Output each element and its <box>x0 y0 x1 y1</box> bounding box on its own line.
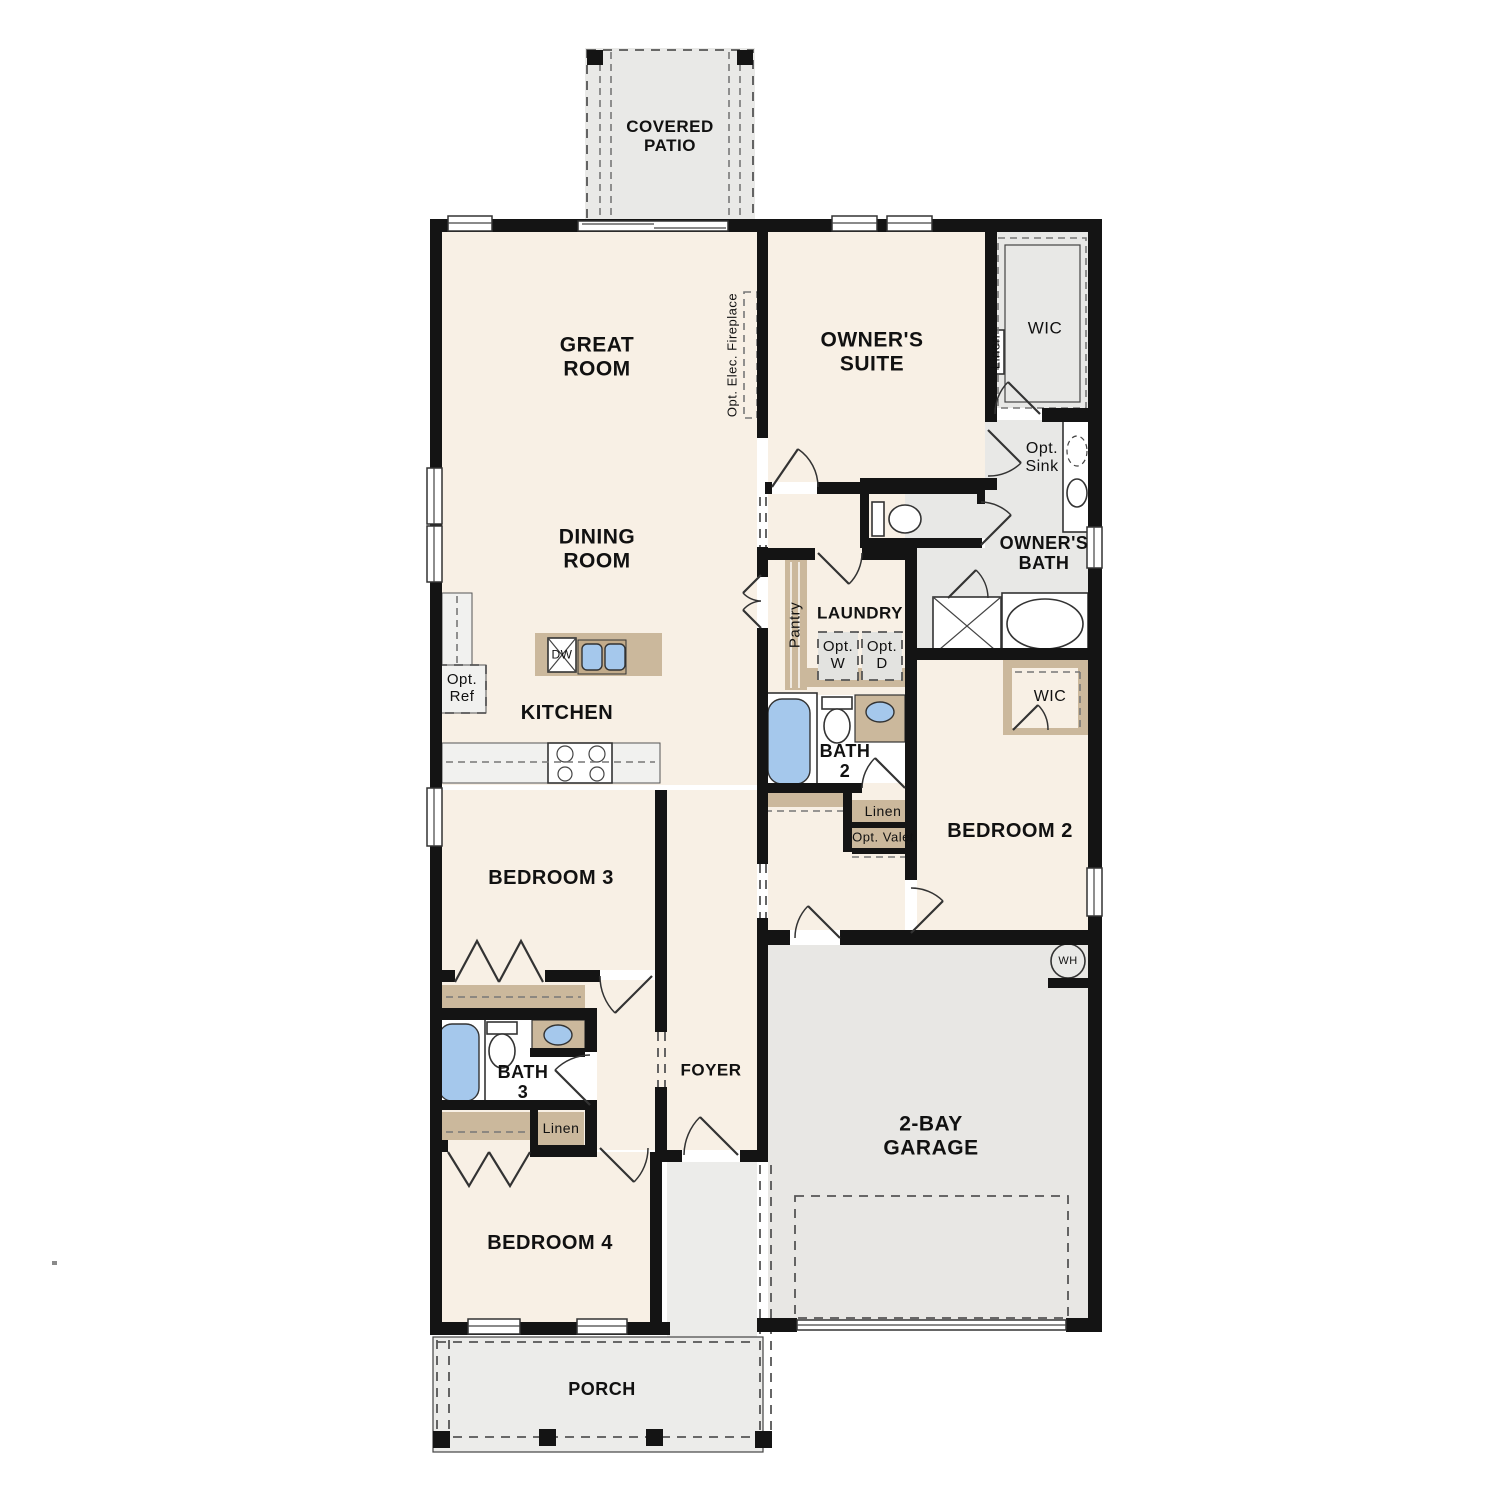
bath3-label: BATH 3 <box>498 1062 549 1102</box>
scan-artifact-dot <box>52 1261 57 1265</box>
bath2-toilet-bowl <box>824 709 850 743</box>
dining-room-label: DINING ROOM <box>559 525 636 572</box>
owners-sink-icon <box>1067 479 1087 507</box>
patio-sliding-door <box>578 221 728 231</box>
bedroom4-label: BEDROOM 4 <box>487 1232 613 1254</box>
owners-toilet-icon <box>872 502 884 536</box>
water-heater-label: WH <box>1058 955 1077 967</box>
owners-bath-label: OWNER'S BATH <box>1000 533 1089 573</box>
owners-wic-label: WIC <box>1028 318 1063 337</box>
bedroom2-label: BEDROOM 2 <box>947 820 1073 842</box>
walkway-floor <box>667 1162 757 1337</box>
porch-post <box>539 1429 556 1446</box>
owners-vanity <box>1063 418 1091 532</box>
opt-sink-label: Opt. Sink <box>1025 440 1058 476</box>
porch-label: PORCH <box>568 1379 636 1399</box>
kitchen-sink-bowl-left <box>582 644 602 670</box>
porch-post <box>646 1429 663 1446</box>
bath2-sink-icon <box>866 702 894 722</box>
bedroom4-closet-shelf <box>442 1112 532 1140</box>
laundry-label: LAUNDRY <box>817 603 903 622</box>
bedroom3-label: BEDROOM 3 <box>488 867 614 889</box>
cased-opening-hall <box>760 864 766 918</box>
opt-dryer-label: Opt. D <box>867 639 897 673</box>
covered-patio-label: COVERED PATIO <box>626 117 714 155</box>
owners-tub-icon <box>1007 599 1083 649</box>
foyer-floor <box>667 790 757 1150</box>
bath2-label: BATH 2 <box>820 741 871 781</box>
pantry-label: Pantry <box>788 602 805 648</box>
bedroom2-wic-label: WIC <box>1034 688 1067 706</box>
patio-post <box>587 50 603 65</box>
bath3-tub-icon <box>439 1024 479 1101</box>
dishwasher-label: DW <box>552 648 573 661</box>
kitchen-label: KITCHEN <box>521 702 613 724</box>
opt-washer-label: Opt. W <box>823 639 853 673</box>
opt-ref-label: Opt. Ref <box>447 672 477 706</box>
floor-plan: COVERED PATIO GREAT ROOM DINING ROOM OWN… <box>0 0 1500 1500</box>
porch-post <box>755 1431 772 1448</box>
owners-linen-label: Linen <box>989 335 1004 369</box>
bath3-toilet-tank <box>487 1022 517 1034</box>
porch-post <box>433 1431 450 1448</box>
great-room-label: GREAT ROOM <box>560 333 634 380</box>
bath2-tub-icon <box>768 699 810 784</box>
opt-valet-label: Opt. Valet <box>852 831 914 846</box>
cased-opening-great-room <box>760 497 766 547</box>
patio-post <box>737 50 753 65</box>
floor-plan-drawing <box>0 0 1500 1500</box>
owners-suite-label: OWNER'S SUITE <box>821 328 924 375</box>
bath3-linen-label: Linen <box>543 1121 580 1137</box>
owners-toilet-bowl <box>889 505 921 533</box>
kitchen-sink-bowl-right <box>605 644 625 670</box>
opt-fireplace-label: Opt. Elec. Fireplace <box>726 293 741 417</box>
range-icon <box>548 743 612 783</box>
foyer-label: FOYER <box>680 1060 741 1079</box>
bath2-toilet-tank <box>822 697 852 709</box>
hall-linen-label: Linen <box>865 804 902 820</box>
garage-label: 2-BAY GARAGE <box>883 1112 978 1159</box>
bath3-sink-icon <box>544 1025 572 1045</box>
